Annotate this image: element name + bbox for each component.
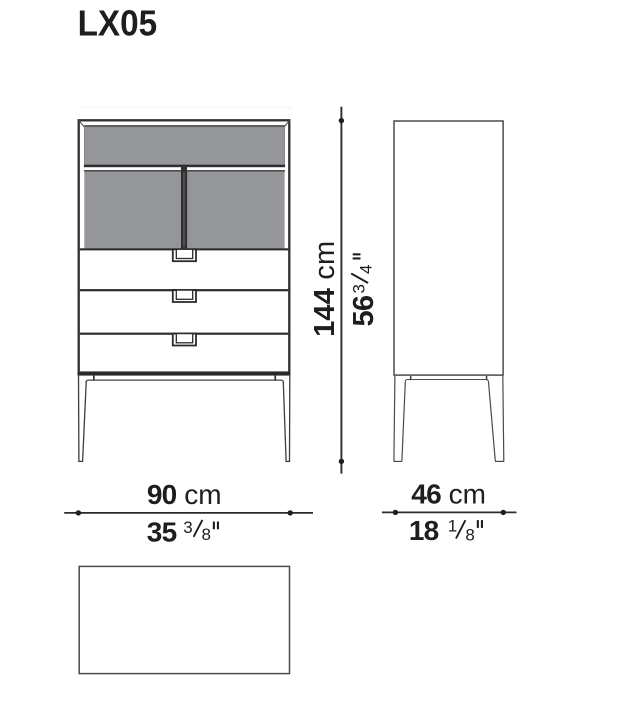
svg-text:18: 18 (409, 515, 439, 546)
svg-text:4: 4 (357, 265, 376, 274)
svg-text:56: 56 (348, 295, 380, 326)
svg-text:LX05: LX05 (78, 3, 158, 44)
svg-text:144 cm: 144 cm (309, 241, 341, 337)
svg-text:46 cm: 46 cm (411, 479, 486, 510)
svg-text:3: 3 (350, 284, 369, 293)
svg-text:8: 8 (465, 526, 474, 545)
svg-text:1: 1 (448, 517, 457, 536)
svg-text:35: 35 (147, 517, 177, 548)
svg-text:3: 3 (183, 518, 192, 537)
svg-text:90 cm: 90 cm (147, 479, 222, 510)
svg-text:8: 8 (202, 525, 211, 544)
